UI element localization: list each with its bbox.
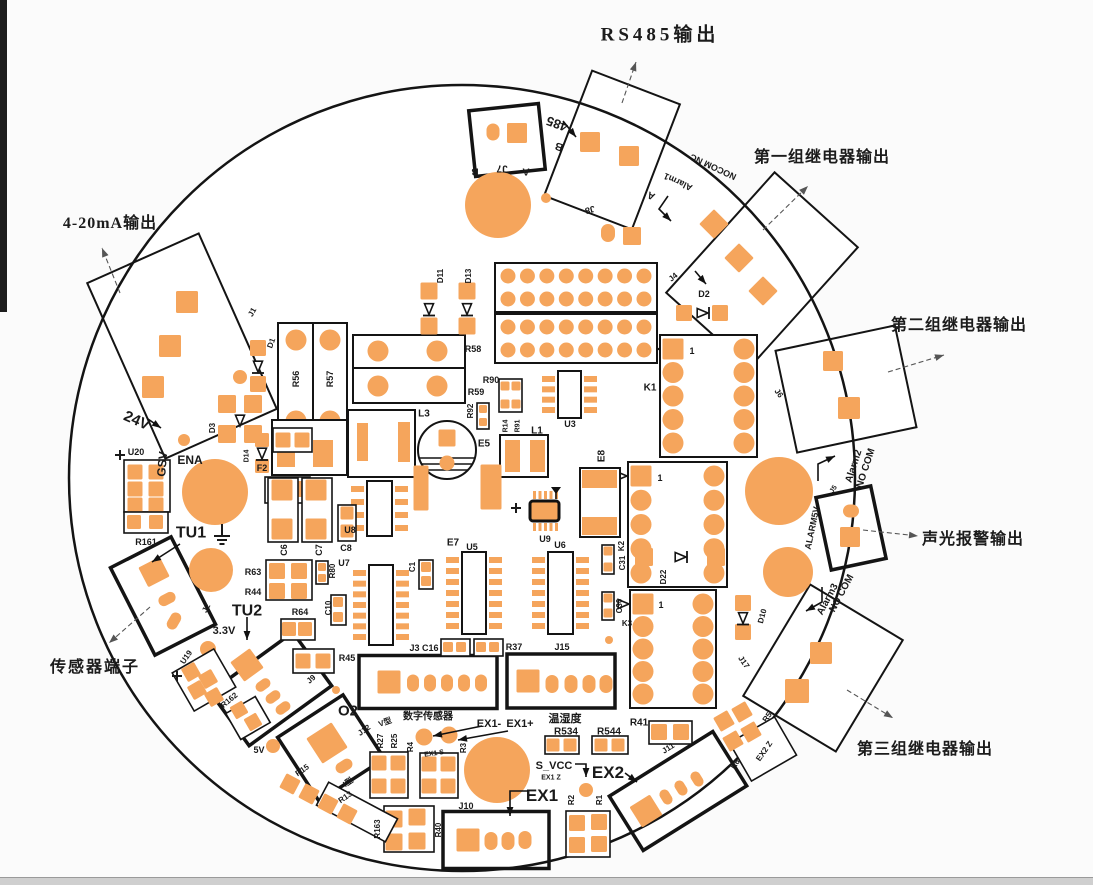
silkscreen-label: J10 bbox=[458, 801, 473, 811]
silkscreen-label: A bbox=[522, 166, 529, 177]
passive-pad bbox=[612, 739, 625, 752]
connector-pad bbox=[487, 124, 500, 141]
via bbox=[233, 370, 247, 384]
header-pin bbox=[520, 292, 535, 307]
relay-pin bbox=[631, 514, 652, 535]
header-pin bbox=[578, 292, 593, 307]
silkscreen-label: K1 bbox=[644, 383, 657, 394]
silkscreen-label: R64 bbox=[292, 607, 309, 617]
ic-body bbox=[548, 552, 573, 634]
silkscreen-label: R161 bbox=[135, 537, 157, 547]
silkscreen-label: L1 bbox=[531, 426, 543, 437]
silkscreen-label: 1 bbox=[658, 600, 663, 610]
silkscreen-label: R91 bbox=[514, 419, 521, 432]
silkscreen-label: C6 bbox=[279, 544, 289, 556]
silkscreen-label: U5 bbox=[466, 542, 478, 552]
passive-pad bbox=[604, 563, 613, 572]
resistor-pad bbox=[427, 376, 448, 397]
silkscreen-label: U6 bbox=[554, 540, 566, 550]
ic-body bbox=[369, 565, 393, 645]
diode-pad bbox=[421, 318, 438, 335]
header-pin bbox=[520, 343, 535, 358]
silkscreen-label: R534 bbox=[554, 727, 578, 738]
smd-pad bbox=[218, 395, 236, 413]
passive-pad bbox=[591, 814, 607, 830]
connector-pad bbox=[546, 675, 559, 693]
silkscreen-label: R3 bbox=[459, 742, 468, 753]
silkscreen-label: 数字传感器 bbox=[403, 710, 454, 723]
diode-pad bbox=[676, 305, 692, 321]
silkscreen-label: 5V bbox=[253, 745, 264, 755]
header-pin bbox=[637, 343, 652, 358]
ic-pin bbox=[544, 491, 547, 499]
passive-pad bbox=[501, 382, 510, 391]
passive-pad bbox=[128, 498, 143, 513]
relay-pin bbox=[734, 433, 755, 454]
smd-pad bbox=[601, 224, 615, 242]
ic-pin bbox=[446, 623, 459, 629]
diode-pad bbox=[735, 624, 751, 640]
passive-pad bbox=[595, 739, 608, 752]
page-edge-bottom bbox=[0, 877, 1093, 885]
callout-relay-group1-output: 第一组继电器输出 bbox=[754, 143, 890, 167]
connector-pad bbox=[407, 675, 419, 692]
header-pin bbox=[598, 320, 613, 335]
silkscreen-label: R27 bbox=[376, 733, 385, 748]
relay-pin bbox=[663, 339, 684, 360]
passive-pad bbox=[318, 563, 326, 571]
relay-pin bbox=[693, 594, 714, 615]
silkscreen-label: S_VCC bbox=[536, 760, 573, 772]
passive-pad bbox=[291, 583, 307, 599]
passive-pad bbox=[569, 815, 585, 831]
passive-pad bbox=[306, 480, 327, 501]
header-pin bbox=[578, 320, 593, 335]
ic-pin bbox=[396, 613, 409, 619]
silkscreen-label: D3 bbox=[208, 422, 217, 433]
header-pin bbox=[520, 269, 535, 284]
header-pin bbox=[520, 320, 535, 335]
passive-pad bbox=[333, 597, 343, 607]
ic-pin bbox=[396, 623, 409, 629]
mounting-hole bbox=[464, 737, 530, 803]
header-pin bbox=[598, 269, 613, 284]
relay-pin bbox=[704, 490, 725, 511]
callout-4-20ma-output: 4-20mA输出 bbox=[63, 209, 157, 233]
arrow-head-icon bbox=[884, 710, 895, 720]
ic-pin bbox=[555, 523, 558, 531]
connector-pad bbox=[424, 675, 436, 692]
passive-pad bbox=[409, 833, 426, 850]
ic-pin bbox=[576, 590, 589, 596]
ic-pin bbox=[532, 590, 545, 596]
ic-pin bbox=[576, 557, 589, 563]
relay-pin bbox=[663, 386, 684, 407]
resistor-pad bbox=[368, 341, 389, 362]
passive-pad bbox=[333, 612, 343, 622]
passive-pad bbox=[298, 622, 312, 636]
diode-pad bbox=[250, 376, 266, 392]
silkscreen-label: R58 bbox=[465, 344, 482, 354]
silkscreen-label: R40 bbox=[434, 822, 443, 837]
header-pin bbox=[617, 343, 632, 358]
connector-pad bbox=[457, 829, 480, 852]
silkscreen-label: O2 bbox=[338, 702, 358, 719]
passive-pad bbox=[282, 622, 296, 636]
header-pin bbox=[501, 269, 516, 284]
ic-pin bbox=[584, 386, 597, 392]
silkscreen-label: EX1+ bbox=[506, 718, 533, 730]
silkscreen-label: C10 bbox=[324, 600, 333, 615]
connector-pad bbox=[583, 675, 596, 693]
inductor-pad bbox=[313, 440, 333, 467]
passive-pad bbox=[149, 515, 163, 529]
connector-pad bbox=[507, 123, 527, 143]
passive-pad bbox=[272, 480, 293, 501]
ic-pin bbox=[550, 523, 553, 531]
silkscreen-label: 1 bbox=[657, 473, 662, 483]
ic-pin bbox=[395, 512, 408, 518]
connector-pad bbox=[485, 832, 498, 850]
via bbox=[541, 193, 551, 203]
silkscreen-label: R56 bbox=[291, 371, 301, 388]
silkscreen-label: R80 bbox=[328, 563, 337, 578]
pin-header bbox=[495, 263, 657, 312]
ic-pin bbox=[353, 623, 366, 629]
passive-pad bbox=[443, 642, 453, 652]
arrow-head-icon bbox=[934, 352, 945, 361]
ic-pin bbox=[584, 376, 597, 382]
ic-pin bbox=[351, 486, 364, 492]
silkscreen-label: R4 bbox=[406, 741, 415, 752]
silkscreen-label: U9 bbox=[539, 534, 551, 544]
page-edge-left bbox=[0, 0, 7, 312]
inductor-pad bbox=[398, 422, 410, 462]
ic-pin bbox=[550, 491, 553, 499]
diode-pad bbox=[735, 595, 751, 611]
connector-pad bbox=[517, 670, 540, 693]
header-pin bbox=[637, 292, 652, 307]
via bbox=[178, 434, 190, 446]
mounting-hole bbox=[465, 172, 531, 238]
header-pin bbox=[578, 269, 593, 284]
connector-pad bbox=[519, 831, 532, 849]
terminal-pad bbox=[619, 146, 639, 166]
smd-pad bbox=[441, 727, 458, 744]
silkscreen-label: U20 bbox=[128, 447, 145, 457]
silkscreen-label: D14 bbox=[243, 449, 250, 462]
silkscreen-label: R57 bbox=[325, 371, 335, 388]
arrow-head-icon bbox=[630, 61, 639, 72]
connector-pad bbox=[840, 527, 860, 547]
smd-pad bbox=[481, 465, 502, 510]
passive-pad bbox=[318, 574, 326, 582]
relay-pin bbox=[663, 409, 684, 430]
ic-pin bbox=[395, 486, 408, 492]
header-pin bbox=[501, 292, 516, 307]
header-pin bbox=[559, 292, 574, 307]
cap-pad bbox=[439, 430, 456, 447]
header-pin bbox=[539, 292, 554, 307]
ic-pin bbox=[576, 568, 589, 574]
terminal-pad bbox=[176, 291, 198, 313]
arrow-head-icon bbox=[99, 247, 109, 258]
relay-pin bbox=[734, 409, 755, 430]
connector-pad bbox=[502, 832, 515, 850]
inductor-pad bbox=[357, 423, 368, 461]
passive-pad bbox=[512, 382, 521, 391]
passive-pad bbox=[316, 654, 331, 669]
silkscreen-label: GSV bbox=[154, 451, 170, 477]
silkscreen-label: R90 bbox=[483, 375, 500, 385]
ic-pin bbox=[353, 602, 366, 608]
passive-pad bbox=[512, 400, 521, 409]
ic-pin bbox=[542, 397, 555, 403]
ic-pin bbox=[542, 376, 555, 382]
ic-pin bbox=[533, 523, 536, 531]
via bbox=[332, 686, 340, 694]
inductor-pad bbox=[582, 470, 617, 488]
passive-pad bbox=[149, 482, 164, 497]
passive-pad bbox=[409, 809, 426, 826]
ic-pin bbox=[532, 601, 545, 607]
silkscreen-label: EX1- bbox=[477, 718, 502, 730]
ic-pin bbox=[353, 581, 366, 587]
silkscreen-label: C7 bbox=[314, 544, 324, 556]
header-pin bbox=[617, 320, 632, 335]
connector-pad bbox=[378, 671, 401, 694]
relay-pin bbox=[704, 514, 725, 535]
silkscreen-label: R14 bbox=[502, 419, 509, 432]
passive-pad bbox=[651, 724, 667, 740]
header-pin bbox=[598, 292, 613, 307]
silkscreen-label: 温湿度 bbox=[549, 711, 583, 725]
passive-pad bbox=[276, 433, 291, 448]
mounting-hole bbox=[182, 459, 248, 525]
header-pin bbox=[637, 320, 652, 335]
header-pin bbox=[501, 343, 516, 358]
silkscreen-label: E5 bbox=[478, 439, 491, 450]
connector-pad bbox=[565, 675, 578, 693]
connector-pad bbox=[475, 675, 487, 692]
header-pin bbox=[617, 269, 632, 284]
ic-pin bbox=[396, 634, 409, 640]
ic-pin bbox=[584, 407, 597, 413]
ic-pin bbox=[489, 579, 502, 585]
header-pin bbox=[539, 269, 554, 284]
ic-pin bbox=[532, 623, 545, 629]
passive-pad bbox=[272, 519, 293, 540]
arrow-head-icon bbox=[909, 532, 919, 540]
ic-pin bbox=[576, 579, 589, 585]
ic-pin bbox=[532, 612, 545, 618]
ic-pin bbox=[539, 491, 542, 499]
passive-pad bbox=[456, 642, 466, 652]
passive-pad bbox=[547, 739, 560, 752]
silkscreen-label: 3.3V bbox=[213, 625, 236, 637]
mounting-hole bbox=[763, 547, 813, 597]
passive-pad bbox=[391, 779, 406, 794]
ic-pin bbox=[533, 491, 536, 499]
diode-pad bbox=[250, 340, 266, 356]
passive-pad bbox=[295, 433, 310, 448]
silkscreen-label: K3 bbox=[622, 619, 633, 628]
passive-pad bbox=[341, 507, 354, 520]
terminal-pad bbox=[580, 132, 600, 152]
ic-pin bbox=[576, 623, 589, 629]
ic-pin bbox=[489, 612, 502, 618]
passive-pad bbox=[296, 654, 311, 669]
silkscreen-label: R2 bbox=[567, 794, 576, 805]
connector-pad bbox=[441, 675, 453, 692]
silkscreen-label: J15 bbox=[554, 642, 569, 652]
passive-pad bbox=[569, 837, 585, 853]
silkscreen-label: R1 bbox=[595, 794, 604, 805]
silkscreen-label: D13 bbox=[464, 268, 473, 283]
callout-relay-group3-output: 第三组继电器输出 bbox=[857, 735, 993, 759]
ic-pin bbox=[532, 568, 545, 574]
cap-pad bbox=[440, 456, 455, 471]
ic-pin bbox=[446, 557, 459, 563]
passive-pad bbox=[306, 519, 327, 540]
silkscreen-label: EX2 bbox=[592, 763, 624, 782]
smd-pad bbox=[414, 466, 429, 511]
smd-pad bbox=[579, 783, 593, 797]
passive-pad bbox=[604, 594, 613, 603]
relay-pin bbox=[633, 661, 654, 682]
silkscreen-label: TU1 bbox=[176, 525, 206, 542]
silkscreen-label: C1 bbox=[408, 561, 417, 572]
header-pin bbox=[598, 343, 613, 358]
relay-pin bbox=[734, 339, 755, 360]
ic-pin bbox=[353, 634, 366, 640]
passive-pad bbox=[421, 576, 431, 586]
relay-pin bbox=[631, 466, 652, 487]
silkscreen-label: R45 bbox=[339, 653, 356, 663]
diode-pad bbox=[459, 318, 476, 335]
passive-pad bbox=[476, 642, 486, 652]
silkscreen-label: R44 bbox=[245, 587, 262, 597]
relay-pin bbox=[693, 639, 714, 660]
resistor-pad bbox=[320, 330, 341, 351]
passive-pad bbox=[149, 498, 164, 513]
callout-sound-light-alarm-output: 声光报警输出 bbox=[922, 525, 1024, 549]
silkscreen-label: R63 bbox=[245, 567, 262, 577]
passive-pad bbox=[564, 739, 577, 752]
passive-pad bbox=[501, 400, 510, 409]
relay-pin bbox=[663, 433, 684, 454]
callout-relay-group2-output: 第二组继电器输出 bbox=[891, 311, 1027, 335]
ic-pin bbox=[446, 568, 459, 574]
ic-pin bbox=[351, 499, 364, 505]
ic-pin bbox=[489, 557, 502, 563]
ic-pin bbox=[544, 523, 547, 531]
relay-pin bbox=[633, 616, 654, 637]
silkscreen-label: K2 bbox=[617, 540, 626, 551]
ic-pin bbox=[542, 386, 555, 392]
ic-pin bbox=[446, 590, 459, 596]
passive-pad bbox=[441, 757, 456, 772]
silkscreen-label: D2 bbox=[698, 289, 710, 299]
silkscreen-label: EX1 bbox=[526, 786, 558, 805]
terminal-pad bbox=[159, 335, 181, 357]
ic-pin bbox=[489, 590, 502, 596]
header-pin bbox=[559, 320, 574, 335]
silkscreen-label: EX1 Z bbox=[541, 774, 561, 781]
relay-pin bbox=[663, 362, 684, 383]
ic-pin bbox=[539, 523, 542, 531]
callout-rs485-output: RS485输出 bbox=[601, 20, 720, 47]
passive-pad bbox=[422, 757, 437, 772]
via bbox=[605, 636, 613, 644]
header-pin bbox=[501, 320, 516, 335]
passive-pad bbox=[479, 405, 487, 413]
diode-pad bbox=[635, 548, 653, 566]
diode-pad bbox=[255, 433, 269, 447]
silkscreen-label: R37 bbox=[506, 642, 523, 652]
passive-pad bbox=[421, 562, 431, 572]
header-pin bbox=[637, 269, 652, 284]
silkscreen-label: B bbox=[471, 166, 478, 177]
silkscreen-label: E8 bbox=[597, 449, 608, 462]
relay-pin bbox=[693, 616, 714, 637]
header-pin bbox=[559, 269, 574, 284]
diode-pad bbox=[707, 548, 725, 566]
silkscreen-label: C30 bbox=[615, 598, 624, 613]
header-pin bbox=[539, 343, 554, 358]
smd-pad bbox=[218, 425, 236, 443]
silkscreen-label: U3 bbox=[564, 419, 576, 429]
header-pin bbox=[578, 343, 593, 358]
ic-pin bbox=[584, 397, 597, 403]
silkscreen-label: R41 bbox=[630, 718, 649, 729]
silkscreen-label: U7 bbox=[338, 558, 350, 568]
inductor-pad bbox=[582, 517, 617, 535]
silkscreen-label: R92 bbox=[466, 403, 475, 418]
ic-pin bbox=[489, 568, 502, 574]
silkscreen-label: D11 bbox=[436, 268, 445, 283]
silkscreen-label: 1 bbox=[689, 346, 694, 356]
ic-pin bbox=[395, 499, 408, 505]
ic-pin bbox=[396, 602, 409, 608]
ic-pin bbox=[446, 601, 459, 607]
inductor-pad bbox=[505, 440, 520, 472]
smd-pad bbox=[244, 395, 262, 413]
relay-pin bbox=[633, 684, 654, 705]
passive-pad bbox=[372, 779, 387, 794]
silkscreen-label: L3 bbox=[418, 409, 430, 420]
ic-pin bbox=[489, 623, 502, 629]
relay-pin bbox=[693, 684, 714, 705]
diode-pad bbox=[712, 305, 728, 321]
passive-pad bbox=[604, 609, 613, 618]
resistor-pad bbox=[286, 330, 307, 351]
silkscreen-label: R163 bbox=[373, 819, 382, 839]
connector-pad bbox=[843, 505, 859, 518]
silkscreen-label: J7 bbox=[496, 163, 508, 174]
smd-pad bbox=[623, 227, 641, 245]
ic-pin bbox=[396, 591, 409, 597]
ic-body bbox=[367, 481, 392, 536]
relay-pin bbox=[693, 661, 714, 682]
terminal-pad bbox=[142, 376, 164, 398]
terminal-pad bbox=[823, 351, 843, 371]
ic-pin bbox=[576, 612, 589, 618]
terminal-pad bbox=[810, 642, 832, 664]
ic-pin bbox=[542, 407, 555, 413]
ic-body bbox=[462, 552, 486, 634]
silkscreen-label: R25 bbox=[390, 733, 399, 748]
